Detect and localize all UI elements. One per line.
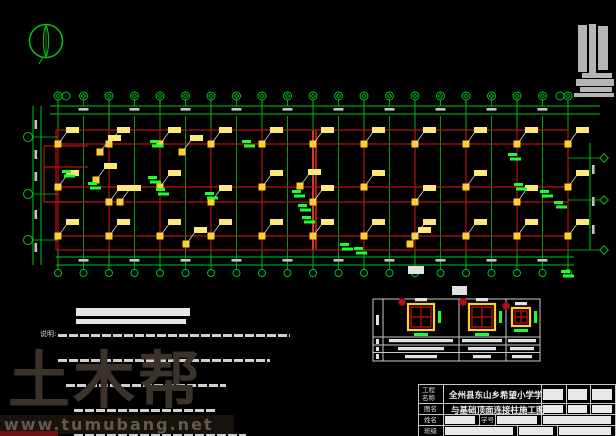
name-label: 姓名: [424, 416, 437, 424]
redaction: [568, 389, 587, 400]
redaction: [445, 427, 513, 435]
title-block: 工程 名称 全州县东山乡希望小学学生宿 图名 与基础顶面连接柱施工图 姓名 学号…: [418, 384, 616, 436]
class-label: 班级: [424, 427, 437, 435]
redaction: [592, 389, 612, 400]
stamp-block: [574, 24, 614, 97]
tb-divider: [590, 385, 591, 414]
plan-title-bar: [76, 308, 190, 316]
redaction: [497, 416, 537, 424]
north-arrow-compass: [30, 25, 63, 65]
tb-divider: [566, 385, 567, 414]
project-label: 工程 名称: [422, 386, 435, 402]
redaction: [445, 416, 475, 424]
note-line: [58, 334, 290, 337]
redaction: [543, 405, 563, 413]
column-schedule-table: [373, 298, 540, 361]
student-id-label: 学号: [481, 416, 494, 424]
redaction: [519, 427, 553, 435]
drawing-name: 与基础顶面连接柱施工图: [451, 404, 545, 416]
redaction: [543, 416, 611, 424]
redaction: [592, 405, 612, 413]
redaction: [559, 427, 611, 435]
tb-divider: [517, 425, 518, 436]
notes-label: 说明:: [40, 329, 56, 339]
redaction: [568, 405, 587, 413]
tb-divider: [443, 385, 444, 436]
white-labels: [408, 266, 467, 295]
tb-divider: [557, 425, 558, 436]
drawing-label: 图名: [424, 405, 437, 413]
row-bubbles-right: [568, 154, 608, 254]
grid-lines-vertical: [58, 100, 568, 269]
redaction: [543, 389, 563, 400]
cad-screenshot: 说明: 土木帮 www.tumubang.net 工程 名称 全州县东山乡希望小…: [0, 0, 616, 436]
plan-title-bar: [76, 319, 186, 324]
bottom-red-strip: [0, 431, 58, 436]
watermark-brand: 土木帮: [8, 346, 203, 416]
